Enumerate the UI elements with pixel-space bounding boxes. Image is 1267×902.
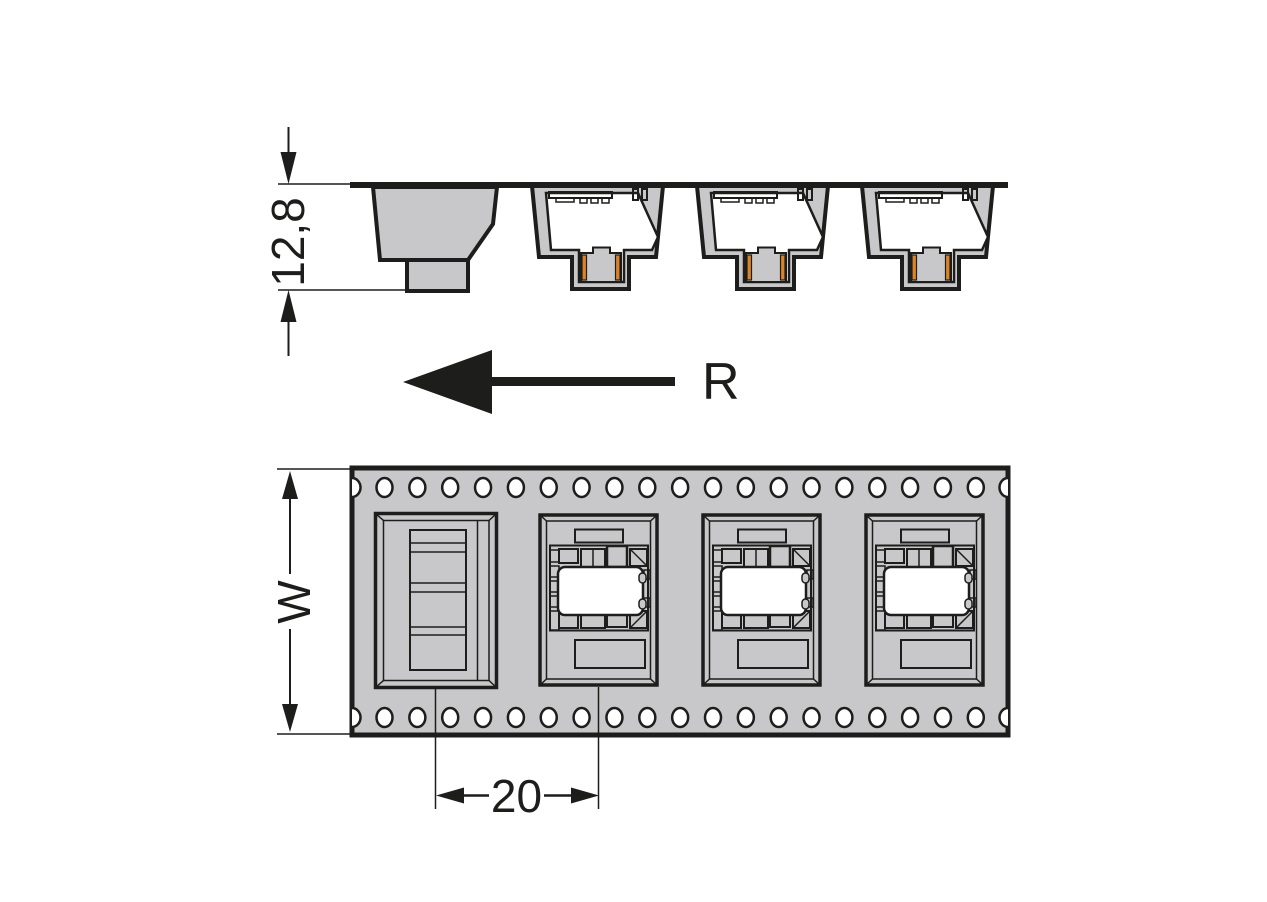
sprocket-hole <box>442 708 458 727</box>
dimension-width: W <box>268 469 358 734</box>
arrow-down-icon <box>281 152 297 184</box>
arrow-up-icon <box>281 290 297 322</box>
sprocket-hole <box>804 708 820 727</box>
arrow-shaft <box>488 377 675 386</box>
side-pocket-empty <box>373 187 497 291</box>
sprocket-hole <box>935 478 951 497</box>
reel-direction-indicator: R <box>403 350 740 414</box>
sprocket-hole <box>672 478 688 497</box>
drawing-page: 12,8 R <box>0 0 1267 902</box>
sprocket-hole <box>409 708 425 727</box>
sprocket-hole <box>541 708 557 727</box>
carrier-tape-top-strip <box>350 182 1008 188</box>
edge-notch <box>1000 708 1009 727</box>
sprocket-hole <box>902 478 918 497</box>
dimension-height-label: 12,8 <box>262 197 314 287</box>
sprocket-hole <box>771 478 787 497</box>
reel-direction-label: R <box>702 353 740 411</box>
sprocket-hole <box>574 478 590 497</box>
top-pocket-component-3 <box>866 515 983 685</box>
sprocket-hole <box>508 478 524 497</box>
side-view <box>278 182 1008 291</box>
sprocket-hole <box>508 708 524 727</box>
sprocket-hole <box>705 478 721 497</box>
side-pocket-component-3 <box>862 186 993 289</box>
top-pocket-component-1 <box>540 515 657 685</box>
sprocket-hole <box>606 708 622 727</box>
sprocket-hole <box>804 478 820 497</box>
arrow-left-icon <box>436 788 464 804</box>
sprocket-hole <box>836 478 852 497</box>
sprocket-hole <box>639 708 655 727</box>
arrow-left-icon <box>403 350 492 414</box>
edge-notch <box>352 478 361 497</box>
edge-notch <box>1000 478 1009 497</box>
sprocket-hole <box>738 478 754 497</box>
sprocket-hole <box>475 478 491 497</box>
sprocket-hole <box>968 478 984 497</box>
sprocket-hole <box>606 478 622 497</box>
arrow-down-icon <box>282 704 298 732</box>
tape-packaging-technical-drawing: 12,8 R <box>0 0 1267 902</box>
arrow-right-icon <box>571 788 599 804</box>
sprocket-hole <box>475 708 491 727</box>
top-view <box>352 468 1008 735</box>
sprocket-hole <box>639 478 655 497</box>
sprocket-hole <box>672 708 688 727</box>
sprocket-hole <box>869 478 885 497</box>
edge-notch <box>352 708 361 727</box>
side-pocket-component-2 <box>697 186 828 289</box>
sprocket-hole <box>377 708 393 727</box>
sprocket-hole <box>836 708 852 727</box>
sprocket-hole <box>705 708 721 727</box>
dimension-pitch-label: 20 <box>491 770 542 822</box>
sprocket-hole <box>738 708 754 727</box>
sprocket-hole <box>442 478 458 497</box>
arrow-up-icon <box>282 471 298 499</box>
sprocket-hole <box>574 708 590 727</box>
top-pocket-component-2 <box>703 515 820 685</box>
sprocket-hole <box>935 708 951 727</box>
dimension-width-label: W <box>268 580 320 624</box>
sprocket-hole <box>902 708 918 727</box>
sprocket-hole <box>869 708 885 727</box>
sprocket-hole <box>541 478 557 497</box>
sprocket-hole <box>409 478 425 497</box>
sprocket-hole <box>968 708 984 727</box>
sprocket-hole <box>771 708 787 727</box>
dimension-height: 12,8 <box>262 127 314 356</box>
top-pocket-empty <box>376 514 497 688</box>
side-pocket-component-1 <box>532 186 663 289</box>
sprocket-hole <box>377 478 393 497</box>
